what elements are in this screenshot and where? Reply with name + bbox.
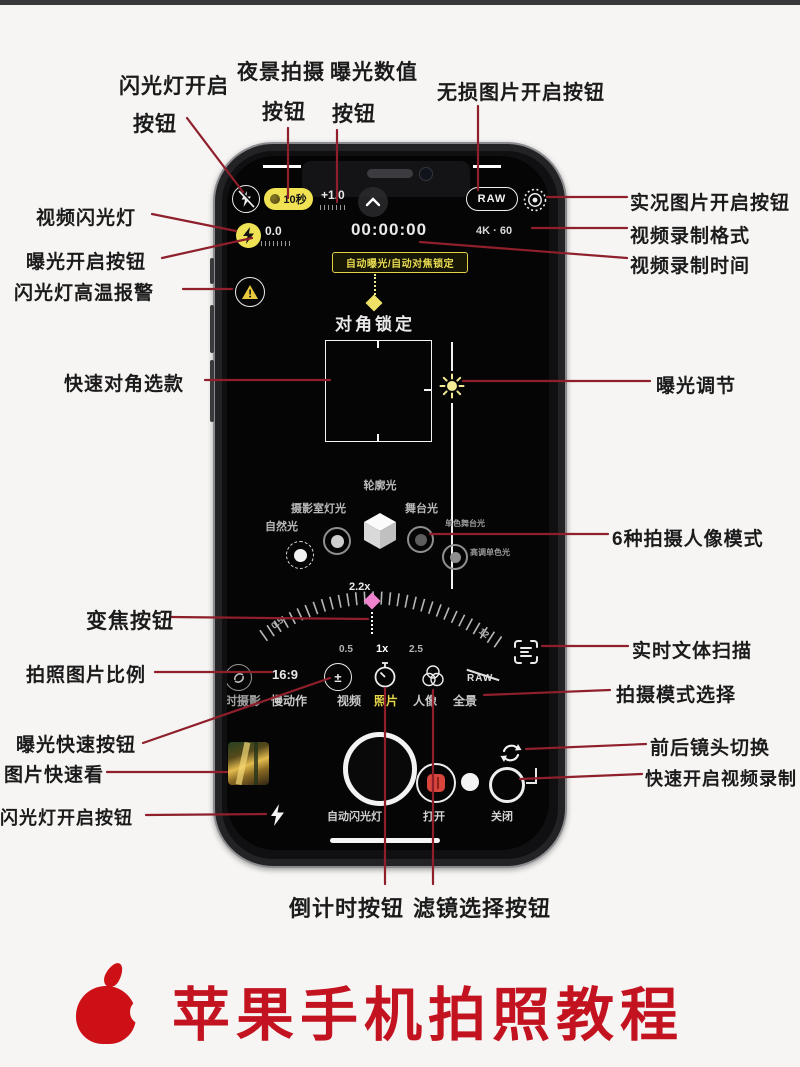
callout-exposure-value-line1: 曝光数值 (330, 56, 418, 86)
zoom-quick-25[interactable]: 2.5 (409, 644, 423, 655)
record-red-square (427, 774, 445, 792)
callout-flash-heat: 闪光灯高温报警 (14, 278, 154, 305)
mode-pano[interactable]: 全景 (453, 692, 477, 709)
volume-down-button[interactable] (210, 360, 214, 422)
video-flash-button[interactable] (236, 223, 261, 248)
record-close-button[interactable] (489, 767, 525, 803)
callout-flash-on-top-line2: 按钮 (133, 108, 177, 138)
callout-text-scan: 实时文体扫描 (632, 636, 752, 663)
top-edge-strip (0, 0, 800, 5)
raw-off-button[interactable]: RAW (467, 668, 499, 686)
warning-triangle-icon (241, 284, 259, 300)
stage-light-icon (415, 534, 427, 546)
callout-exposure-adjust: 曝光调节 (656, 371, 736, 398)
plus-minus-icon: ± (334, 670, 341, 685)
filter-icon (420, 664, 446, 689)
callout-video-flash: 视频闪光灯 (36, 203, 136, 230)
live-photo-icon (523, 188, 547, 212)
phone-frame: 10秒 +1.0 RAW 0.0 00:00:00 4K · (213, 142, 567, 868)
diag-lock-title: 对角锁定 (295, 310, 455, 335)
recording-time: 00:00:00 (335, 220, 443, 240)
volume-up-button[interactable] (210, 305, 214, 353)
lighting-stage-mono-label[interactable]: 单色舞台光 (445, 518, 485, 529)
camera-screen: 10秒 +1.0 RAW 0.0 00:00:00 4K · (227, 156, 549, 850)
exposure-slider-track-top (451, 342, 453, 371)
close-label: 关闭 (491, 808, 513, 824)
callout-flash-on-bottom: 闪光灯开启按钮 (0, 804, 133, 830)
live-photo-button[interactable] (523, 188, 547, 212)
zoom-marker-dotted-line (371, 612, 373, 634)
callout-lens-switch: 前后镜头切换 (650, 733, 770, 760)
callout-quick-diag: 快速对角选款 (64, 369, 184, 396)
raw-badge-button[interactable]: RAW (466, 187, 518, 211)
text-scan-icon (512, 638, 540, 666)
bottom-flash-icon (269, 804, 285, 826)
callout-filter-select: 滤镜选择按钮 (413, 891, 551, 923)
focus-dotted-line (374, 274, 376, 295)
lighting-stage-button[interactable] (407, 526, 434, 553)
home-indicator[interactable] (330, 838, 440, 843)
flash-status-label: 自动闪光灯 (327, 808, 382, 824)
zoom-quick-1x[interactable]: 1x (376, 643, 388, 655)
apple-logo-body (76, 986, 136, 1044)
callout-exposure-on: 曝光开启按钮 (26, 247, 146, 274)
screen-highlight-right (473, 165, 501, 168)
tutorial-page: { "page": { "accent_line_color": "#8e1f2… (0, 0, 800, 1067)
lighting-contour-label[interactable]: 轮廓光 (340, 477, 420, 493)
callout-exposure-value-line2: 按钮 (332, 98, 376, 128)
callout-mode-select: 拍摄模式选择 (616, 680, 736, 707)
white-dot-indicator[interactable] (461, 773, 479, 791)
lighting-stage-label[interactable]: 舞台光 (405, 500, 438, 516)
callout-zoom-button: 变焦按钮 (86, 605, 174, 635)
lighting-cube[interactable] (358, 509, 402, 553)
ae-af-lock-banner: 自动曝光/自动对焦锁定 (332, 252, 468, 273)
flash-off-icon (235, 188, 257, 210)
aspect-toggle-icon (232, 671, 246, 685)
zoom-current-value: 2.2x (349, 581, 370, 593)
callout-photo-ratio: 拍照图片比例 (26, 660, 146, 687)
lighting-natural-label[interactable]: 自然光 (265, 518, 298, 534)
exposure-value-main[interactable]: 0.0 (265, 224, 282, 238)
ratio-value-button[interactable]: 16:9 (272, 667, 298, 682)
thumbnail-light-ray (236, 742, 251, 785)
filter-button[interactable] (420, 664, 446, 689)
chevron-up-button[interactable] (358, 187, 388, 217)
zoom-quick-05[interactable]: 0.5 (339, 644, 353, 655)
lens-flip-button[interactable] (497, 739, 525, 767)
lighting-studio-label[interactable]: 摄影室灯光 (291, 500, 346, 516)
ae-af-lock-text: 自动曝光/自动对焦锁定 (346, 255, 454, 270)
shutter-button[interactable] (343, 732, 417, 806)
callout-quick-video: 快速开启视频录制 (645, 765, 797, 791)
aspect-toggle-button[interactable] (227, 664, 252, 691)
focus-notch-right (424, 389, 431, 391)
focus-diamond (366, 295, 383, 312)
corner-bracket (526, 768, 537, 784)
studio-light-icon (331, 535, 344, 548)
callout-exposure-quick: 曝光快速按钮 (16, 730, 136, 757)
callout-night-mode-line2: 按钮 (262, 96, 306, 126)
lighting-studio-button[interactable] (323, 527, 351, 555)
mode-slomo[interactable]: 慢动作 (271, 692, 307, 709)
callout-lossless: 无损图片开启按钮 (437, 76, 605, 105)
exposure-value-top[interactable]: +1.0 (321, 188, 345, 202)
night-duration-label: 10秒 (283, 191, 306, 207)
photo-thumbnail[interactable] (228, 742, 269, 785)
record-open-button[interactable] (416, 763, 456, 803)
text-scan-button[interactable] (512, 638, 540, 666)
apple-logo-bite (130, 1000, 152, 1024)
zoom-dial[interactable] (227, 556, 523, 664)
mute-switch[interactable] (210, 258, 214, 284)
exposure-sun-handle[interactable] (439, 373, 465, 399)
thumbnail-tree (254, 742, 258, 785)
callout-video-time: 视频录制时间 (630, 251, 750, 278)
apple-logo (76, 962, 142, 1046)
sun-icon (439, 373, 465, 399)
timer-icon (372, 661, 398, 689)
focus-notch-top (377, 341, 379, 348)
moon-icon (270, 194, 280, 204)
callout-portrait-modes: 6种拍摄人像模式 (612, 524, 764, 551)
exposure-quick-button[interactable]: ± (324, 663, 352, 691)
exposure-scale-main (261, 241, 291, 246)
chevron-up-icon (365, 197, 381, 207)
speaker-grille (367, 169, 413, 178)
flash-bolt-icon (242, 227, 255, 244)
raw-badge-label: RAW (478, 193, 507, 205)
mode-video[interactable]: 视频 (337, 692, 361, 709)
mode-timelapse[interactable]: 延时摄影 (227, 692, 261, 709)
night-mode-button[interactable]: 10秒 (264, 188, 313, 210)
flash-heat-warning-button[interactable] (235, 277, 265, 307)
recording-format[interactable]: 4K · 60 (476, 225, 512, 237)
flash-off-button[interactable] (232, 185, 260, 213)
bottom-flash-button[interactable] (269, 804, 285, 826)
callout-flash-on-top-line1: 闪光灯开启 (119, 70, 229, 100)
exposure-scale-top (320, 205, 348, 210)
open-label: 打开 (423, 808, 445, 824)
focus-square[interactable] (325, 340, 432, 442)
cube-icon (358, 509, 402, 553)
callout-countdown: 倒计时按钮 (289, 891, 404, 923)
focus-notch-bottom (377, 434, 379, 441)
callout-live-photo: 实况图片开启按钮 (630, 188, 790, 215)
callout-photo-quick-view: 图片快速看 (4, 760, 104, 787)
screen-highlight-left (263, 165, 301, 168)
page-title: 苹果手机拍照教程 (172, 968, 684, 1052)
front-camera-dot (419, 167, 433, 181)
mode-portrait[interactable]: 人像 (413, 692, 437, 709)
lens-flip-icon (497, 739, 525, 767)
timer-button[interactable] (372, 661, 398, 689)
mode-photo[interactable]: 照片 (374, 692, 398, 709)
callout-night-mode-line1: 夜景拍摄 (237, 56, 325, 86)
callout-video-format: 视频录制格式 (630, 221, 750, 248)
